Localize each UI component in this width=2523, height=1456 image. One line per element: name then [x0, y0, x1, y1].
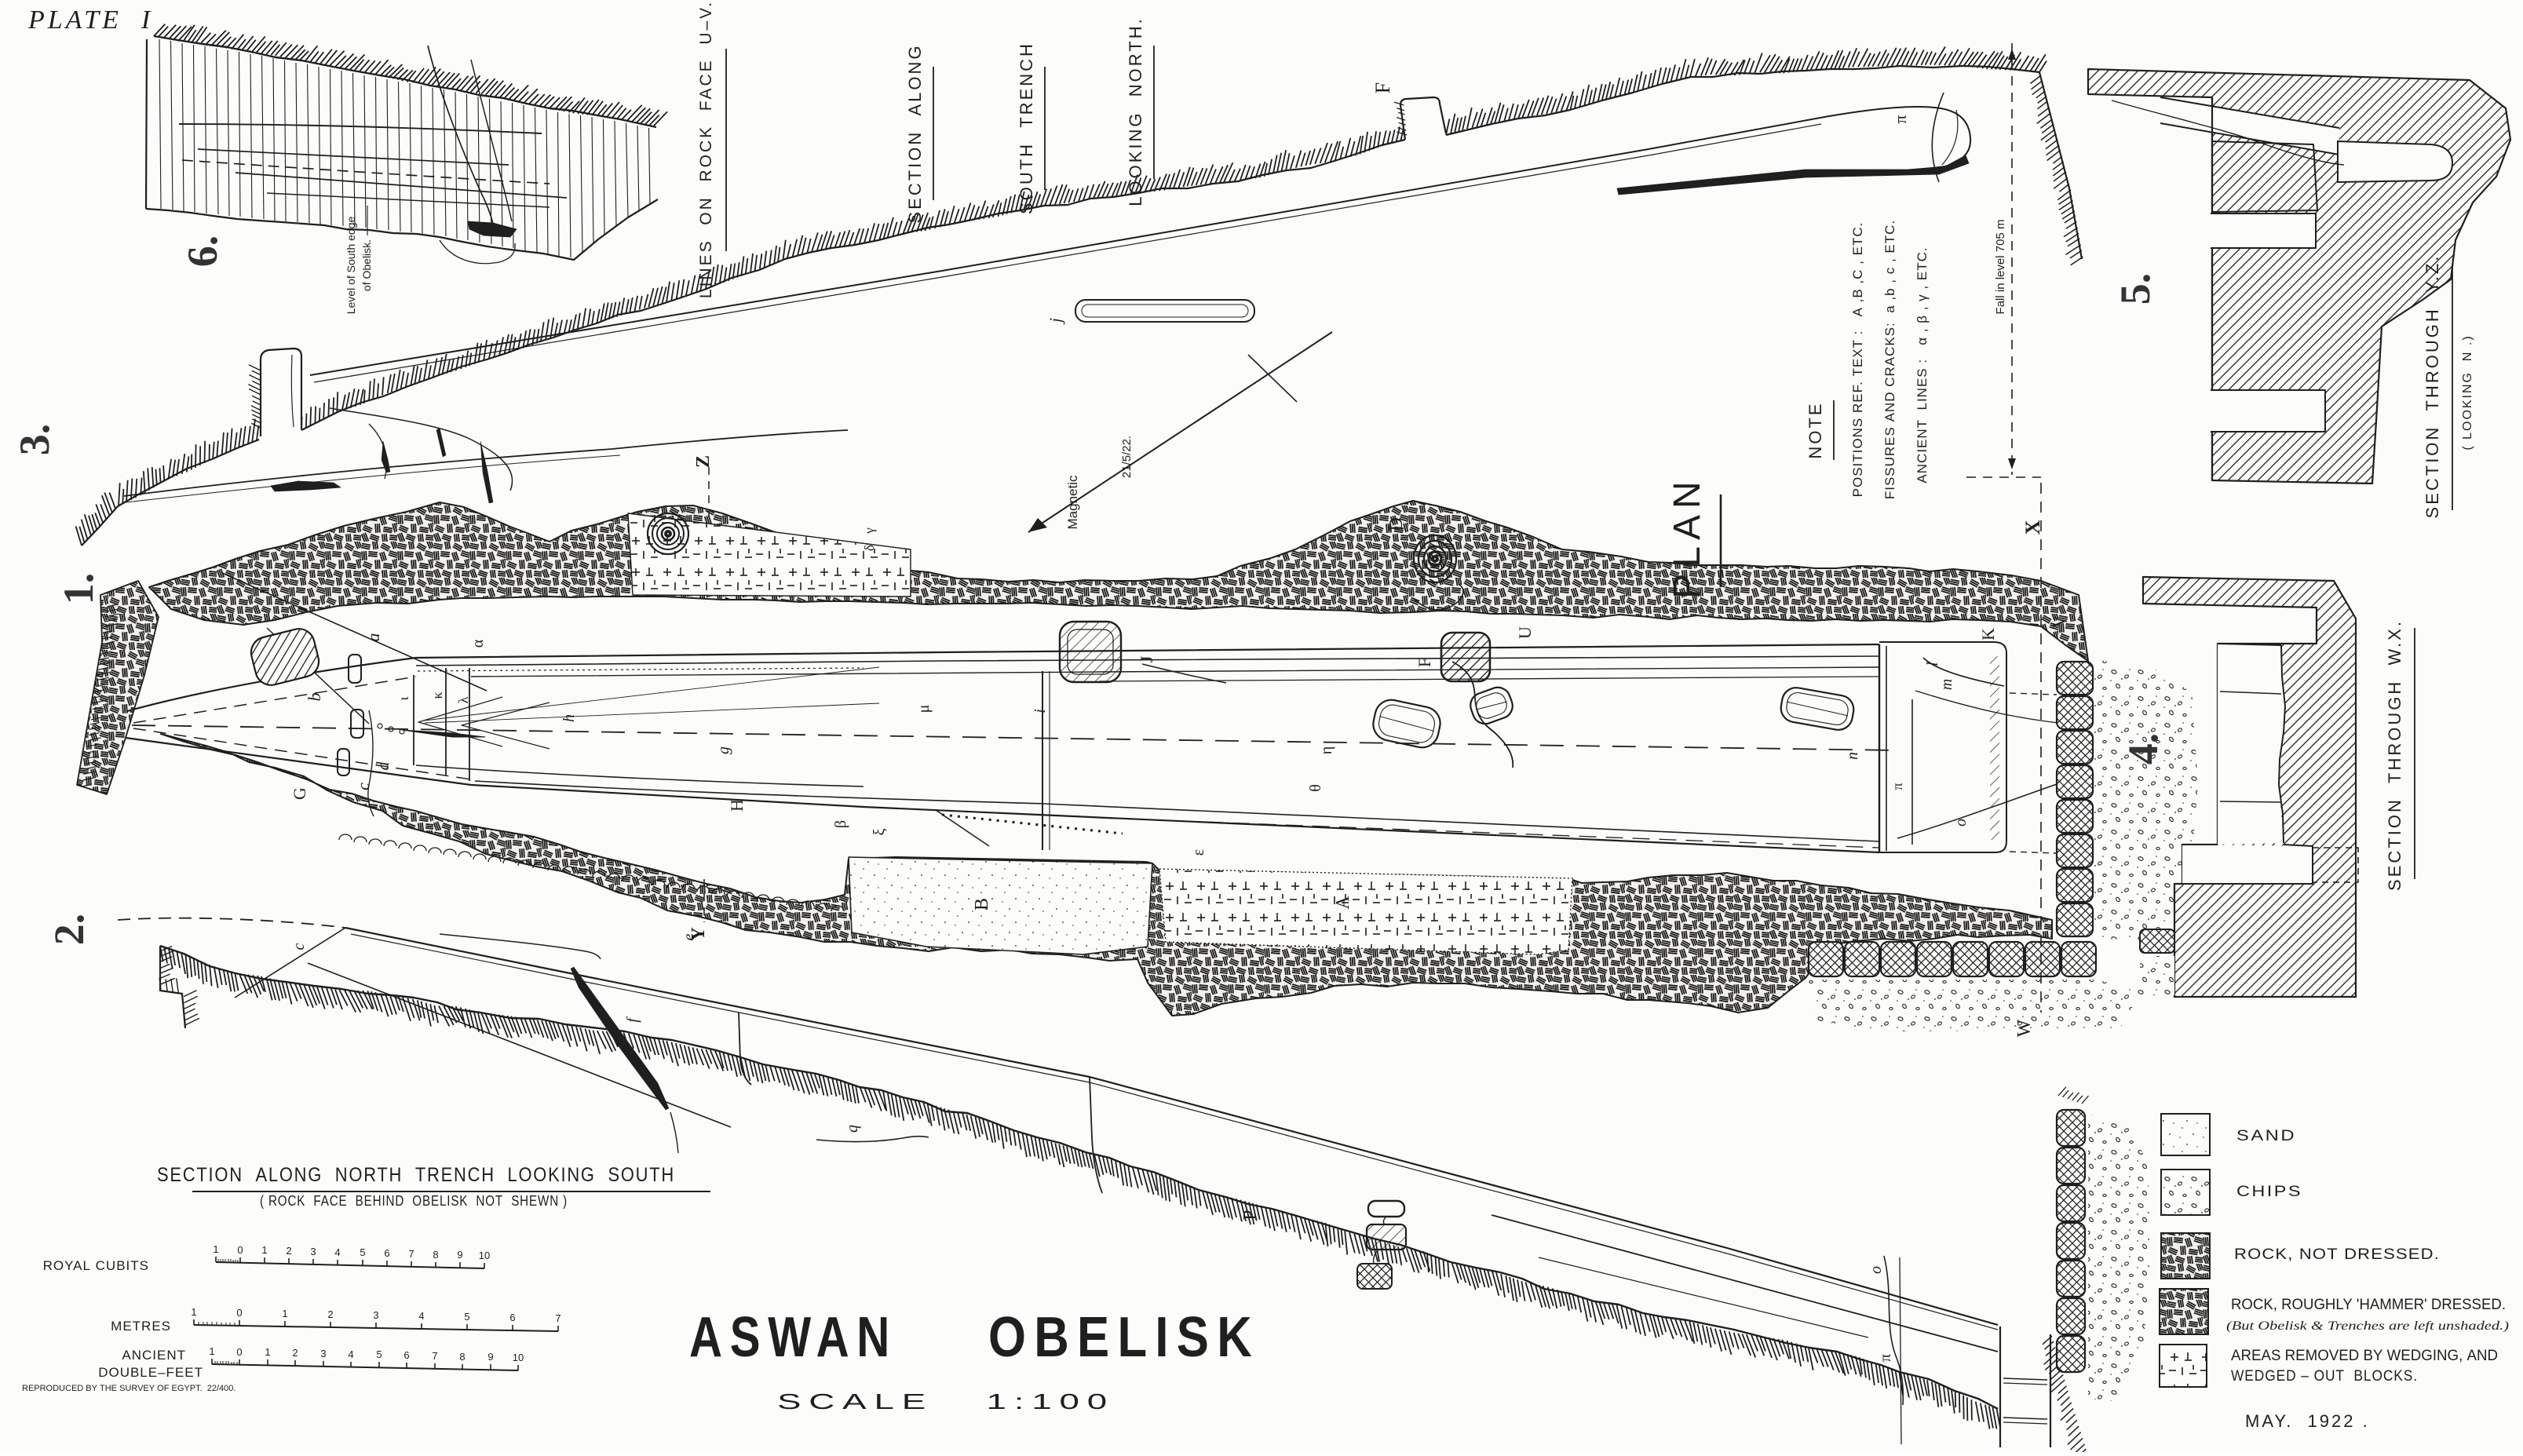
svg-text:X: X [2021, 520, 2044, 535]
svg-text:π: π [1877, 1354, 1894, 1362]
svg-text:1: 1 [265, 1346, 270, 1358]
svg-text:SECTION ALONG: SECTION ALONG [905, 43, 925, 223]
svg-text:1: 1 [191, 1306, 196, 1318]
svg-text:V: V [2049, 615, 2068, 628]
svg-text:A: A [1333, 896, 1353, 910]
svg-text:a: a [363, 633, 383, 642]
svg-text:7: 7 [408, 1248, 414, 1260]
svg-text:1.: 1. [55, 573, 102, 605]
svg-text:10: 10 [513, 1352, 524, 1363]
svg-text:3: 3 [320, 1348, 326, 1359]
svg-text:2: 2 [327, 1308, 333, 1320]
svg-text:o: o [1868, 1266, 1885, 1274]
svg-text:1: 1 [213, 1243, 218, 1255]
svg-text:π: π [1890, 115, 1910, 123]
svg-text:6: 6 [403, 1349, 409, 1361]
svg-text:8: 8 [459, 1351, 465, 1363]
svg-text:β: β [832, 820, 849, 828]
svg-text:1: 1 [209, 1345, 214, 1357]
svg-text:π: π [1890, 783, 1905, 790]
svg-text:6.: 6. [179, 235, 226, 268]
svg-text:3: 3 [373, 1309, 378, 1321]
svg-text:ξ: ξ [871, 828, 888, 835]
svg-text:B: B [972, 898, 992, 910]
svg-text:MAY. 1922 .: MAY. 1922 . [2245, 1411, 2370, 1431]
svg-text:b: b [305, 693, 324, 702]
svg-text:G: G [290, 787, 309, 800]
svg-text:η: η [1318, 746, 1335, 754]
svg-text:6: 6 [384, 1247, 389, 1259]
svg-text:h: h [560, 714, 578, 722]
svg-text:SECTION THROUGH W.X.: SECTION THROUGH W.X. [2385, 619, 2404, 891]
svg-text:α: α [469, 639, 487, 648]
svg-text:Z: Z [693, 455, 714, 468]
svg-text:ε: ε [1190, 849, 1207, 856]
svg-text:SECTION ALONG NORTH TRENCH: SECTION ALONG NORTH TRENCH LOOKING SOUTH [157, 1164, 675, 1186]
svg-text:λ: λ [455, 696, 471, 703]
svg-text:9: 9 [487, 1351, 493, 1363]
svg-text:5.: 5. [2112, 273, 2159, 305]
svg-text:2: 2 [286, 1245, 291, 1257]
svg-text:i: i [1031, 709, 1049, 713]
svg-text:( LOOKING N .): ( LOOKING N .) [2461, 334, 2474, 450]
svg-text:d: d [373, 761, 393, 771]
svg-text:J: J [1137, 655, 1156, 662]
svg-text:7: 7 [432, 1350, 437, 1362]
svg-text:θ: θ [1307, 784, 1324, 792]
svg-text:2.: 2. [46, 914, 93, 946]
svg-text:μ: μ [915, 705, 933, 713]
svg-text:1: 1 [261, 1244, 267, 1256]
svg-text:0: 0 [236, 1346, 242, 1358]
svg-text:DOUBLE–FEET: DOUBLE–FEET [98, 1365, 203, 1380]
svg-text:7: 7 [555, 1312, 560, 1324]
svg-text:ROYAL CUBITS: ROYAL CUBITS [43, 1258, 149, 1273]
svg-text:of Obelisk.: of Obelisk. [360, 239, 373, 291]
svg-text:γ: γ [862, 527, 877, 535]
svg-text:ANCIENT: ANCIENT [122, 1348, 186, 1363]
svg-text:ROCK, ROUGHLY 'HAMMER' DRESSED: ROCK, ROUGHLY 'HAMMER' DRESSED. [2231, 1297, 2506, 1313]
svg-text:q: q [844, 1125, 861, 1133]
svg-text:1: 1 [282, 1308, 287, 1319]
svg-text:5: 5 [360, 1246, 365, 1258]
svg-text:5: 5 [376, 1348, 382, 1360]
svg-text:SOUTH TRENCH: SOUTH TRENCH [1017, 42, 1036, 214]
svg-text:LINES ON ROCK FACE U–V.: LINES ON ROCK FACE U–V. [697, 0, 715, 298]
svg-text:CHIPS: CHIPS [2236, 1184, 2302, 1200]
svg-text:F: F [1371, 82, 1394, 93]
svg-text:δ: δ [862, 545, 877, 551]
svg-text:2: 2 [292, 1347, 298, 1359]
svg-text:P: P [1240, 1210, 1261, 1220]
svg-text:OBELISK: OBELISK [988, 1306, 1260, 1369]
svg-text:l: l [1922, 170, 1940, 175]
svg-text:POSITIONS REF. TEXT : A ,B ,: POSITIONS REF. TEXT : A ,B ,C , ETC. [1850, 222, 1865, 498]
svg-text:3: 3 [310, 1246, 316, 1257]
svg-text:o: o [1952, 819, 1970, 827]
svg-text:e: e [681, 933, 698, 940]
svg-text:LOOKING NORTH.: LOOKING NORTH. [1126, 16, 1145, 206]
svg-text:8: 8 [433, 1249, 438, 1261]
svg-text:4: 4 [334, 1246, 340, 1258]
svg-text:PLAN: PLAN [1667, 475, 1708, 598]
svg-text:(But Obelisk & Trenches are le: (But Obelisk & Trenches are left unshade… [2226, 1319, 2509, 1333]
svg-text:g: g [715, 746, 732, 754]
svg-text:9: 9 [457, 1249, 462, 1261]
svg-text:4: 4 [348, 1348, 353, 1360]
svg-text:3.: 3. [11, 424, 58, 456]
svg-text:FISSURES AND CRACKS: a ,b , c: FISSURES AND CRACKS: a ,b , c , ETC. [1882, 220, 1897, 499]
svg-text:4: 4 [418, 1310, 424, 1322]
svg-text:m: m [1938, 679, 1955, 690]
svg-text:ROCK, NOT DRESSED.: ROCK, NOT DRESSED. [2234, 1246, 2440, 1263]
svg-text:U: U [1515, 626, 1535, 639]
svg-text:Magnetic: Magnetic [1065, 475, 1080, 529]
svg-text:SECTION THROUGH Y.Z.: SECTION THROUGH Y.Z. [2423, 254, 2442, 519]
svg-text:Level of South edge: Level of South edge [345, 217, 357, 315]
svg-text:H: H [727, 799, 747, 812]
svg-text:ANCIENT LINES : α , β , γ ,: ANCIENT LINES : α , β , γ , ETC. [1915, 246, 1930, 483]
svg-text:5: 5 [464, 1311, 469, 1323]
svg-text:REPRODUCED BY THE SURVEY OF EG: REPRODUCED BY THE SURVEY OF EGYPT. 22/40… [22, 1384, 236, 1393]
svg-text:21/5/22.: 21/5/22. [1120, 436, 1134, 478]
svg-text:4.: 4. [2120, 733, 2167, 765]
svg-text:D: D [1386, 517, 1407, 531]
svg-text:0: 0 [236, 1307, 242, 1319]
svg-text:K: K [1978, 628, 1998, 640]
svg-text:ASWAN: ASWAN [689, 1306, 897, 1369]
svg-text:κ: κ [429, 692, 445, 699]
svg-text:0: 0 [237, 1244, 243, 1256]
svg-text:AREAS REMOVED BY WEDGING, AND: AREAS REMOVED BY WEDGING, AND [2231, 1348, 2498, 1364]
svg-text:METRES: METRES [111, 1319, 171, 1334]
svg-text:c: c [353, 783, 373, 790]
svg-text:Fall in level 705 m: Fall in level 705 m [1994, 220, 2007, 315]
svg-text:c: c [290, 943, 308, 950]
svg-text:PLATE I: PLATE I [27, 5, 153, 35]
svg-text:NOTE: NOTE [1806, 401, 1825, 458]
svg-text:( ROCK FACE BEHIND OBELISK: ( ROCK FACE BEHIND OBELISK NOT SHEWN ) [260, 1193, 568, 1209]
svg-text:n: n [1844, 752, 1861, 760]
svg-text:SCALE 1:100: SCALE 1:100 [777, 1389, 1115, 1414]
svg-text:l: l [1924, 662, 1941, 666]
svg-text:SAND: SAND [2236, 1128, 2296, 1144]
svg-text:W: W [2014, 1019, 2035, 1037]
svg-text:WEDGED – OUT BLOCKS.: WEDGED – OUT BLOCKS. [2231, 1368, 2418, 1385]
svg-text:10: 10 [479, 1250, 490, 1261]
svg-text:6: 6 [509, 1312, 515, 1323]
svg-text:ι: ι [396, 696, 411, 700]
